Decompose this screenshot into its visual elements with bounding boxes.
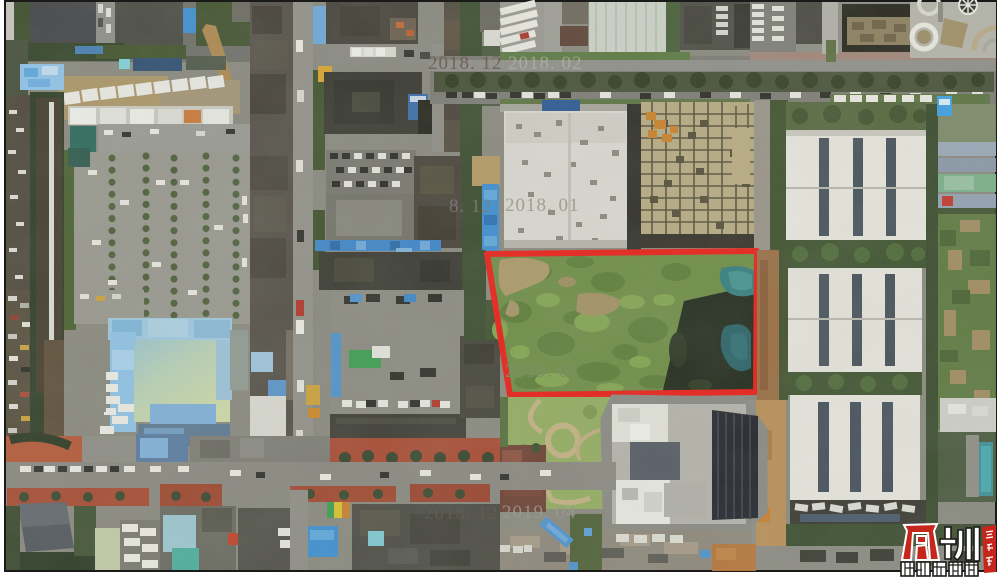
svg-text:2018. 12: 2018. 12 bbox=[428, 53, 503, 74]
svg-text:8. 12: 8. 12 bbox=[449, 196, 492, 217]
svg-text:2018. 12: 2018. 12 bbox=[424, 503, 499, 524]
svg-text:2018. 02: 2018. 02 bbox=[508, 53, 583, 74]
svg-text:2019. 04: 2019. 04 bbox=[505, 361, 580, 382]
svg-text:2019. 04: 2019. 04 bbox=[502, 502, 577, 523]
svg-text:2018. 01: 2018. 01 bbox=[505, 195, 580, 216]
